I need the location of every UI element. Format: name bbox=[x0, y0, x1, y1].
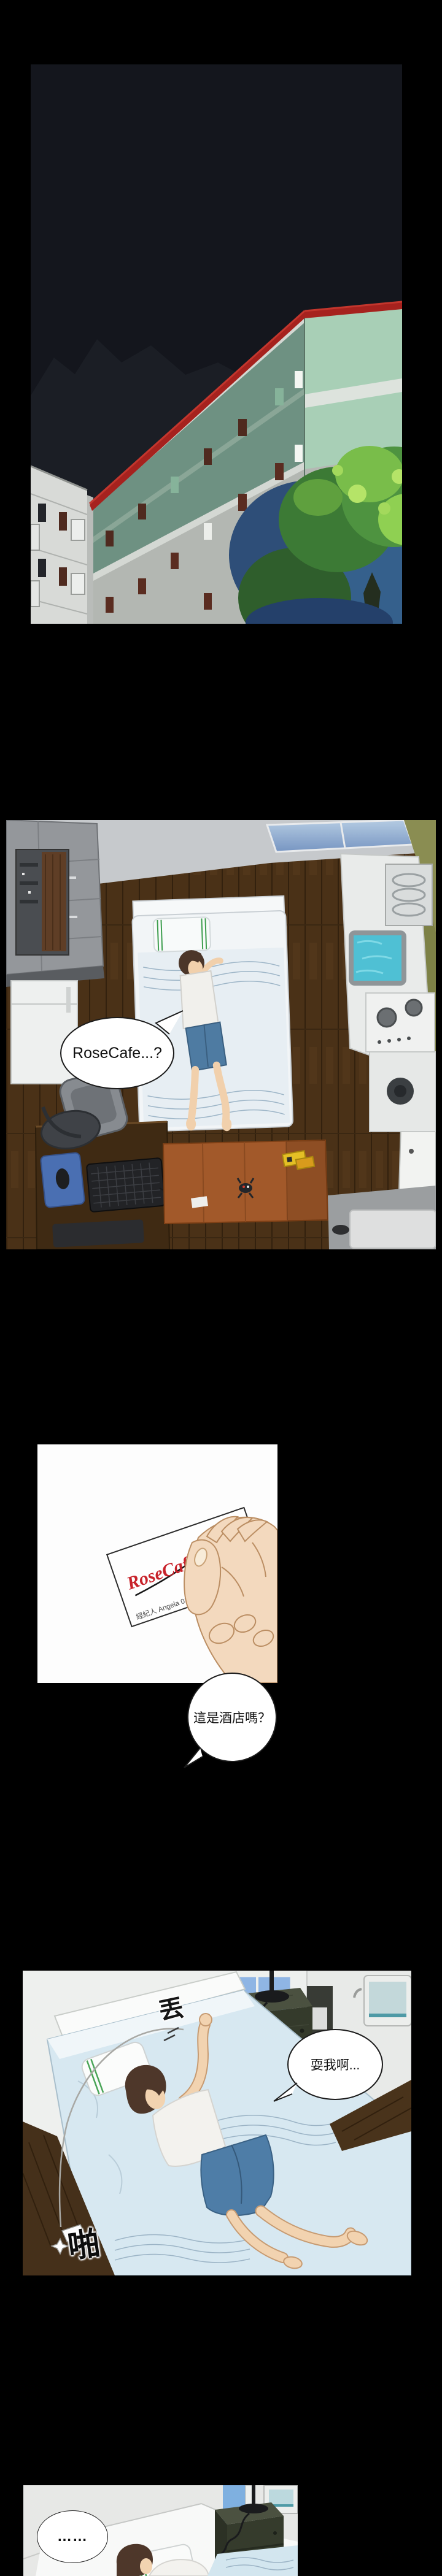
keyboard bbox=[87, 1158, 165, 1212]
speech-bubble-teasing: 耍我啊... bbox=[287, 2029, 383, 2100]
stove bbox=[366, 993, 435, 1052]
panel-night-exterior bbox=[31, 64, 402, 624]
speech-text: …… bbox=[57, 2528, 88, 2545]
speech-text: RoseCafe...? bbox=[72, 1045, 162, 1062]
speaker-bar bbox=[52, 1219, 144, 1248]
wardrobe bbox=[6, 820, 104, 987]
mat bbox=[350, 1210, 436, 1248]
panel-business-card: RoseCafe 經紀人 Angela 010-9XXX-XXXX bbox=[37, 1444, 277, 1683]
bubble-tail bbox=[271, 2080, 301, 2104]
business-card-art: RoseCafe 經紀人 Angela 010-9XXX-XXXX bbox=[37, 1444, 277, 1683]
low-table bbox=[163, 1140, 328, 1224]
night-exterior-art bbox=[31, 64, 402, 624]
bubble-tail bbox=[153, 1008, 185, 1037]
speech-text: 耍我啊... bbox=[311, 2055, 360, 2074]
speech-bubble-silence: …… bbox=[37, 2510, 108, 2563]
white-building bbox=[31, 466, 93, 624]
comic-page: RoseCafe...? RoseCafe 經紀人 Angela 010-9XX… bbox=[0, 0, 442, 2576]
speech-text: 這是酒店嗎？ bbox=[193, 1708, 271, 1727]
bubble-tail bbox=[182, 1747, 206, 1770]
sfx-slap: 啪 bbox=[64, 2217, 103, 2267]
